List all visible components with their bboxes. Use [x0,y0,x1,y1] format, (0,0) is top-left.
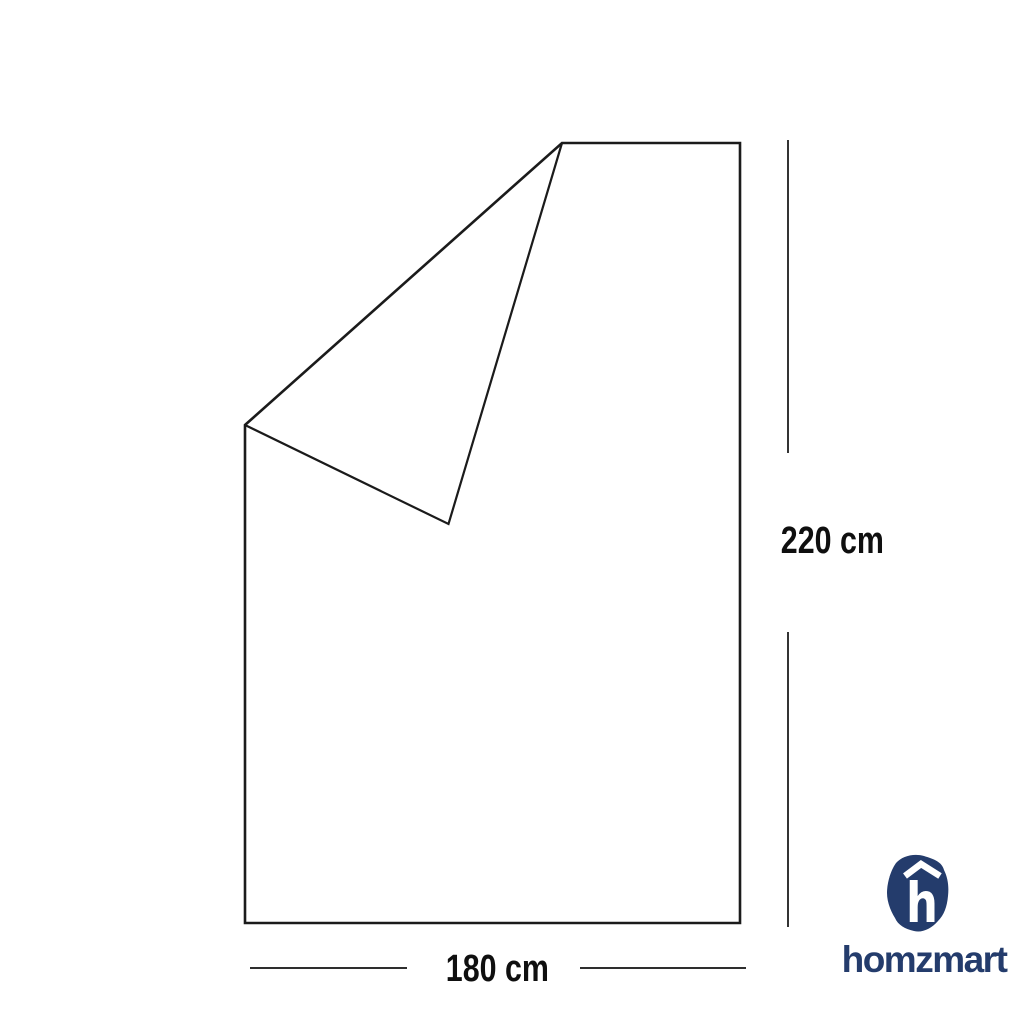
width-dimension-label: 180 cm [446,950,540,988]
logo-h-letter: h [906,871,938,935]
homzmart-logo-mark: h [886,851,950,935]
blanket-body-outline [245,143,740,923]
height-dimension-label: 220 cm [781,522,875,560]
product-dimension-image: 220 cm 180 cm h homzmart [0,0,1024,1024]
homzmart-wordmark: homzmart [834,941,1014,978]
blanket-dimension-drawing [0,0,1024,1024]
